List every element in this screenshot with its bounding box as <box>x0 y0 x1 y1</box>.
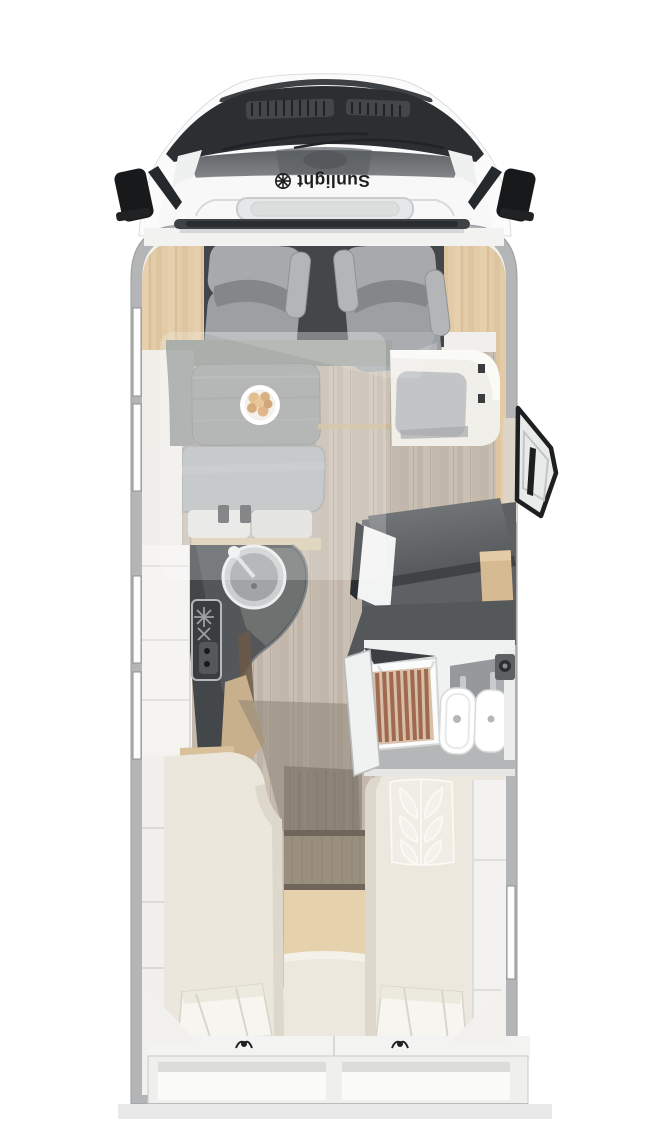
svg-text:Sunlight: Sunlight <box>297 171 370 191</box>
